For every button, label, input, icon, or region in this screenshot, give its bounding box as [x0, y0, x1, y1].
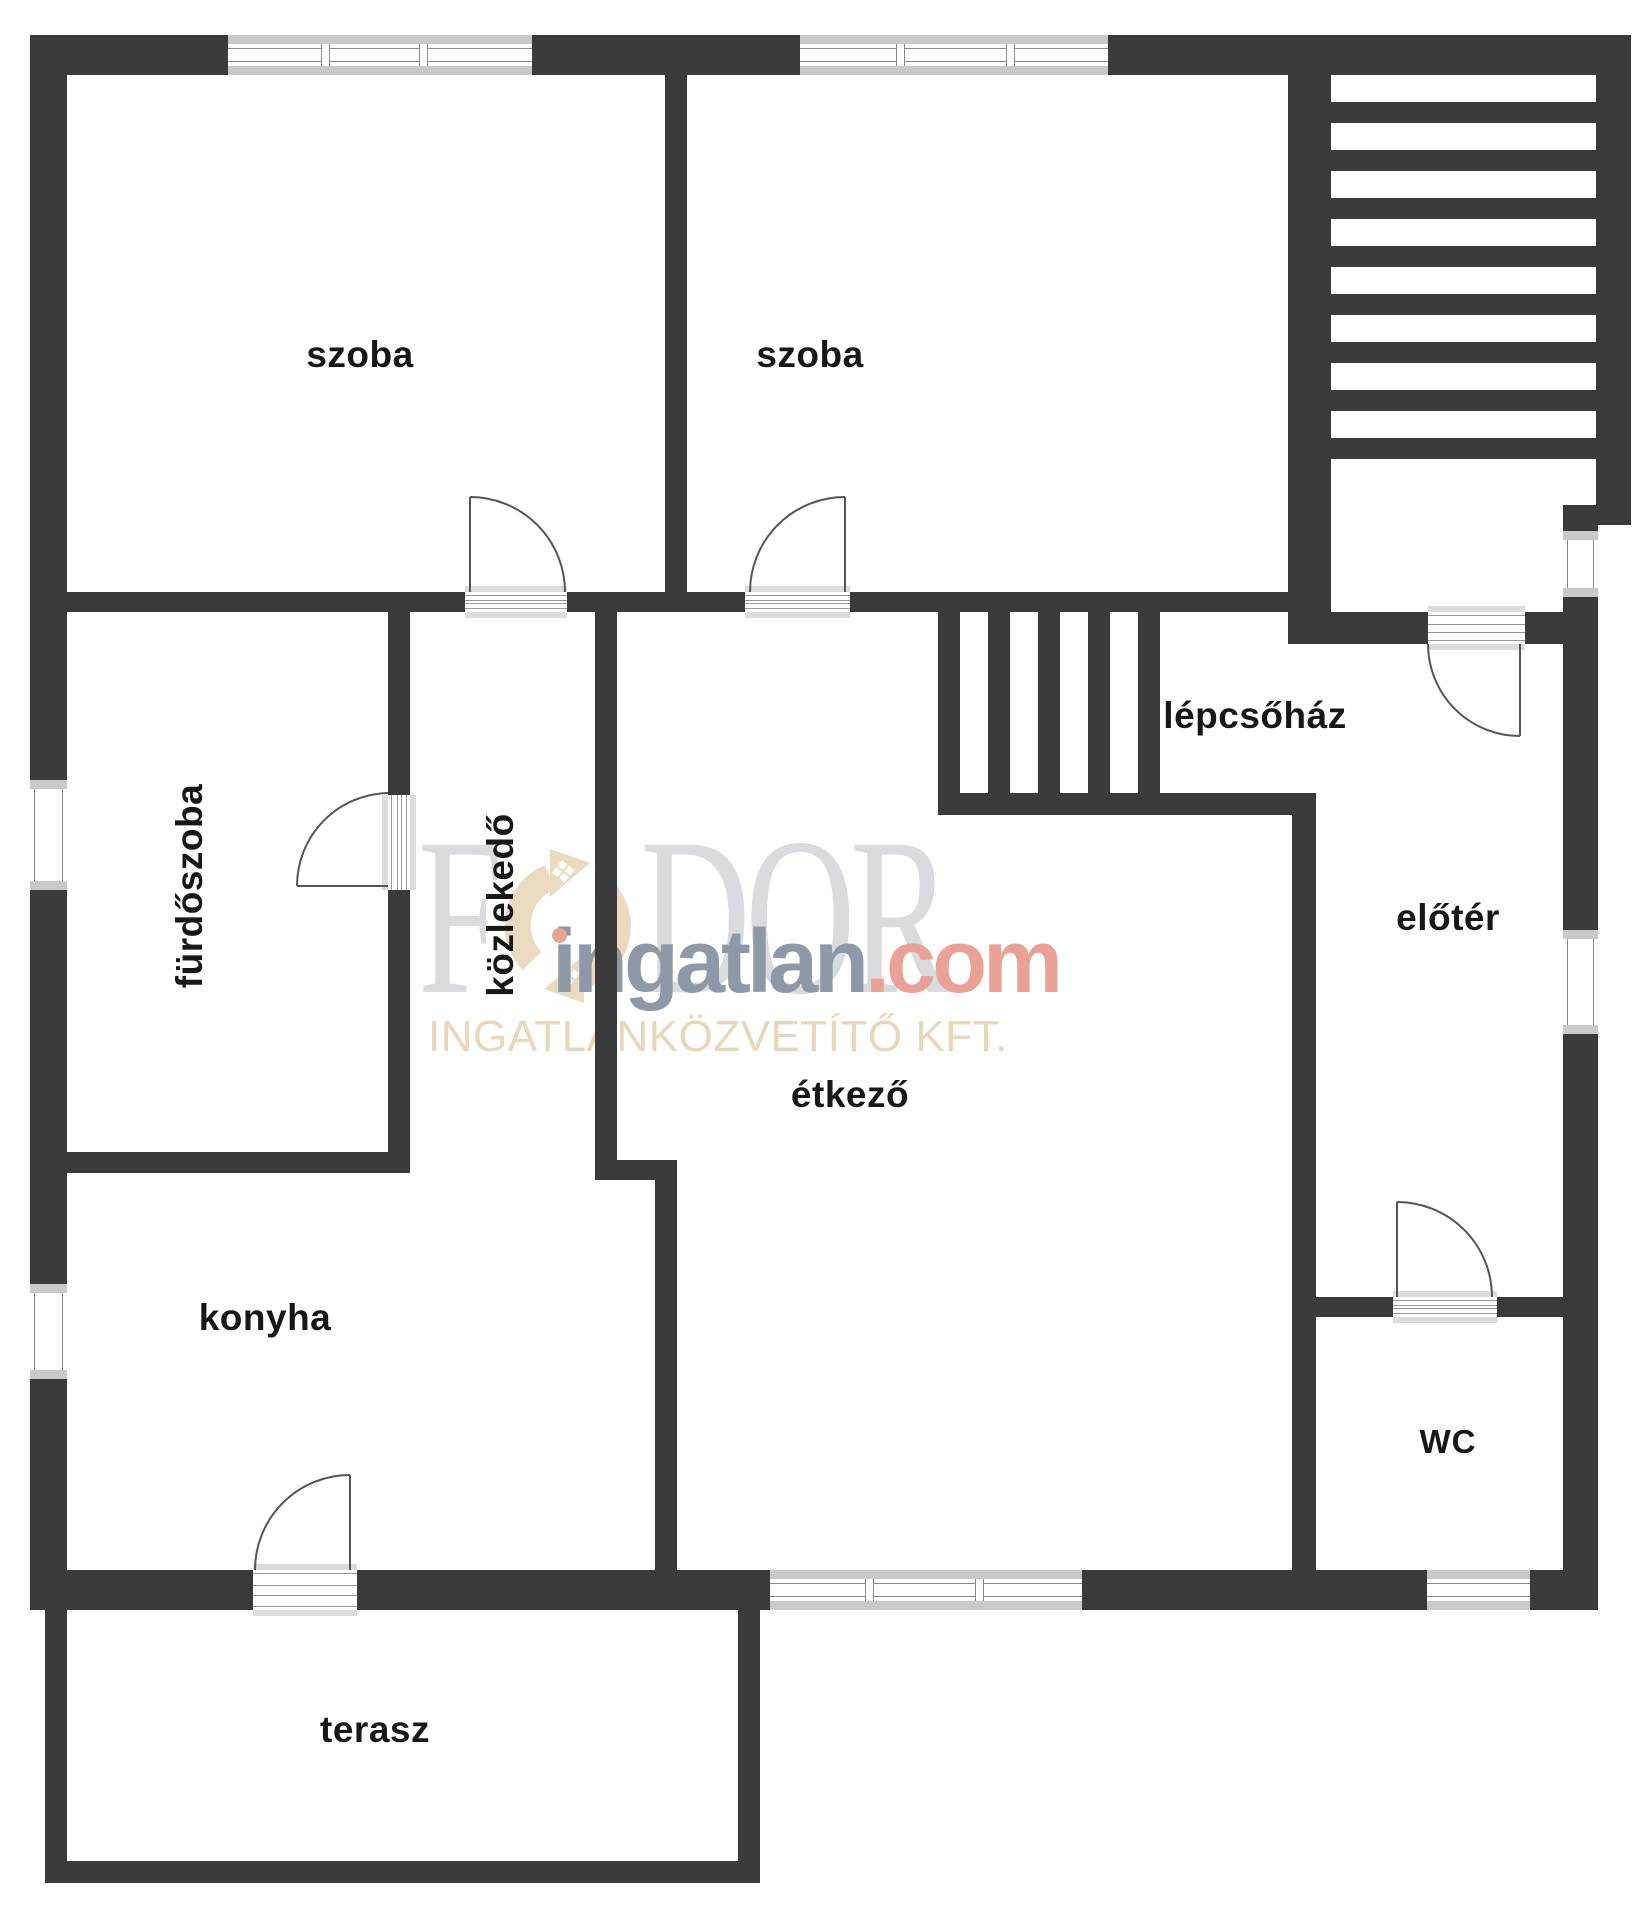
- room-label-eloter: előtér: [1396, 897, 1500, 939]
- room-label-kozlekedo: közlekedő: [480, 813, 522, 996]
- room-label-lepcsohaz: lépcsőház: [1163, 695, 1346, 737]
- room-label-etkezo: étkező: [791, 1074, 909, 1116]
- room-label-wc: wc: [1420, 1423, 1477, 1461]
- door-szoba2: [750, 497, 845, 592]
- door-szoba1: [470, 497, 565, 592]
- room-label-furdoszoba: fürdőszoba: [169, 784, 211, 988]
- door-terasz: [255, 1475, 350, 1570]
- door-eloter: [1428, 644, 1520, 736]
- door-swing-arcs: [0, 0, 1642, 1920]
- room-label-szoba-1: szoba: [306, 334, 413, 376]
- room-label-szoba-2: szoba: [756, 334, 863, 376]
- floor-plan-canvas: F DOR ingatlan.com INGATLANKÖZVETÍTŐ KFT…: [0, 0, 1642, 1920]
- door-furdoszoba: [297, 793, 388, 886]
- room-label-konyha: konyha: [199, 1297, 332, 1339]
- door-wc: [1397, 1202, 1492, 1297]
- room-label-terasz: terasz: [320, 1709, 430, 1751]
